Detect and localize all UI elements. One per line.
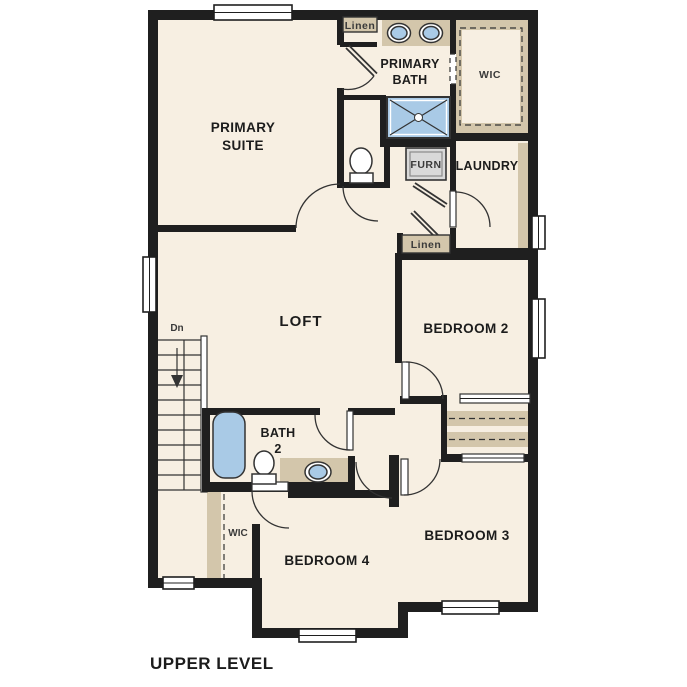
wic-upper-opening — [450, 54, 456, 84]
plan-title: UPPER LEVEL — [150, 654, 274, 673]
toilet-primary-bowl — [350, 148, 372, 174]
linen-upper-label: Linen — [345, 20, 376, 32]
door-leaf-bedroom3 — [401, 459, 408, 495]
wall-segment — [395, 253, 538, 260]
primary-bath-label: BATH — [393, 73, 428, 87]
primary-bath-label: PRIMARY — [380, 57, 440, 71]
wall-segment — [441, 395, 447, 462]
wic-lower-label: WIC — [228, 528, 247, 539]
sink-primary-right-basin — [423, 27, 439, 40]
linen-hall-label: Linen — [411, 239, 442, 251]
toilet-primary-tank — [350, 173, 373, 183]
wall-segment — [202, 408, 210, 492]
laundry-shelf-strip — [518, 143, 528, 248]
wic-lower-shelf-strip — [207, 492, 221, 578]
wall-segment — [348, 408, 395, 415]
door-leaf-bedroom2 — [402, 362, 409, 399]
wall-segment — [395, 253, 402, 363]
wall-segment — [450, 20, 456, 54]
bedroom3-label: BEDROOM 3 — [424, 528, 509, 543]
sink-bath2-basin — [309, 465, 327, 479]
wall-segment — [384, 147, 390, 188]
floor-plan: PRIMARY SUITE PRIMARY BATH LOFT BEDROOM … — [0, 0, 687, 687]
toilet-bath2-bowl — [254, 451, 274, 475]
door-leaf-laundry — [450, 191, 456, 227]
bedroom4-label: BEDROOM 4 — [284, 553, 369, 568]
wic-upper-label: WIC — [479, 69, 501, 81]
furnace-label: FURN — [410, 159, 441, 171]
wall-segment — [148, 225, 296, 232]
wall-segment — [380, 138, 455, 147]
bath2-label: BATH — [261, 426, 296, 440]
bath2-label: 2 — [274, 442, 281, 456]
wall-segment — [389, 455, 399, 507]
sink-primary-left-basin — [391, 27, 407, 40]
bedroom2-label: BEDROOM 2 — [423, 321, 508, 336]
door-leaf-bath2 — [347, 411, 353, 450]
toilet-bath2-tank — [252, 474, 276, 484]
wall-segment — [337, 95, 382, 100]
tub-bath2 — [213, 412, 245, 478]
primary-suite-label: PRIMARY — [211, 120, 276, 135]
primary-suite-label: SUITE — [222, 138, 264, 153]
loft-label: LOFT — [279, 313, 322, 330]
wall-segment — [337, 88, 344, 187]
wall-segment — [340, 42, 377, 47]
wall-segment — [450, 133, 538, 141]
wall-segment — [348, 456, 355, 490]
shower-drain — [415, 114, 423, 122]
stairs-dn-label: Dn — [170, 323, 183, 334]
laundry-label: LAUNDRY — [456, 159, 519, 173]
